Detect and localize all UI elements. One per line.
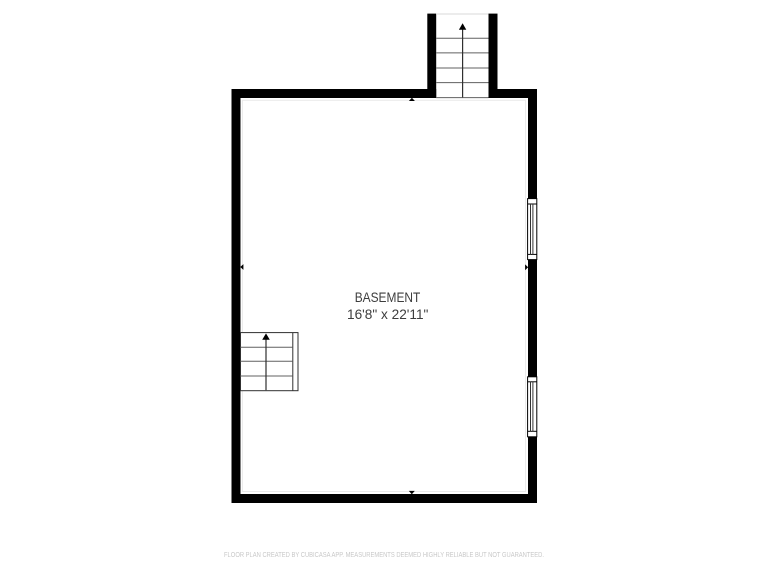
svg-text:BASEMENT: BASEMENT bbox=[355, 289, 421, 305]
svg-text:16'8" x 22'11": 16'8" x 22'11" bbox=[347, 306, 428, 322]
svg-text:FLOOR PLAN CREATED BY CUBICASA: FLOOR PLAN CREATED BY CUBICASA APP. MEAS… bbox=[224, 550, 544, 559]
